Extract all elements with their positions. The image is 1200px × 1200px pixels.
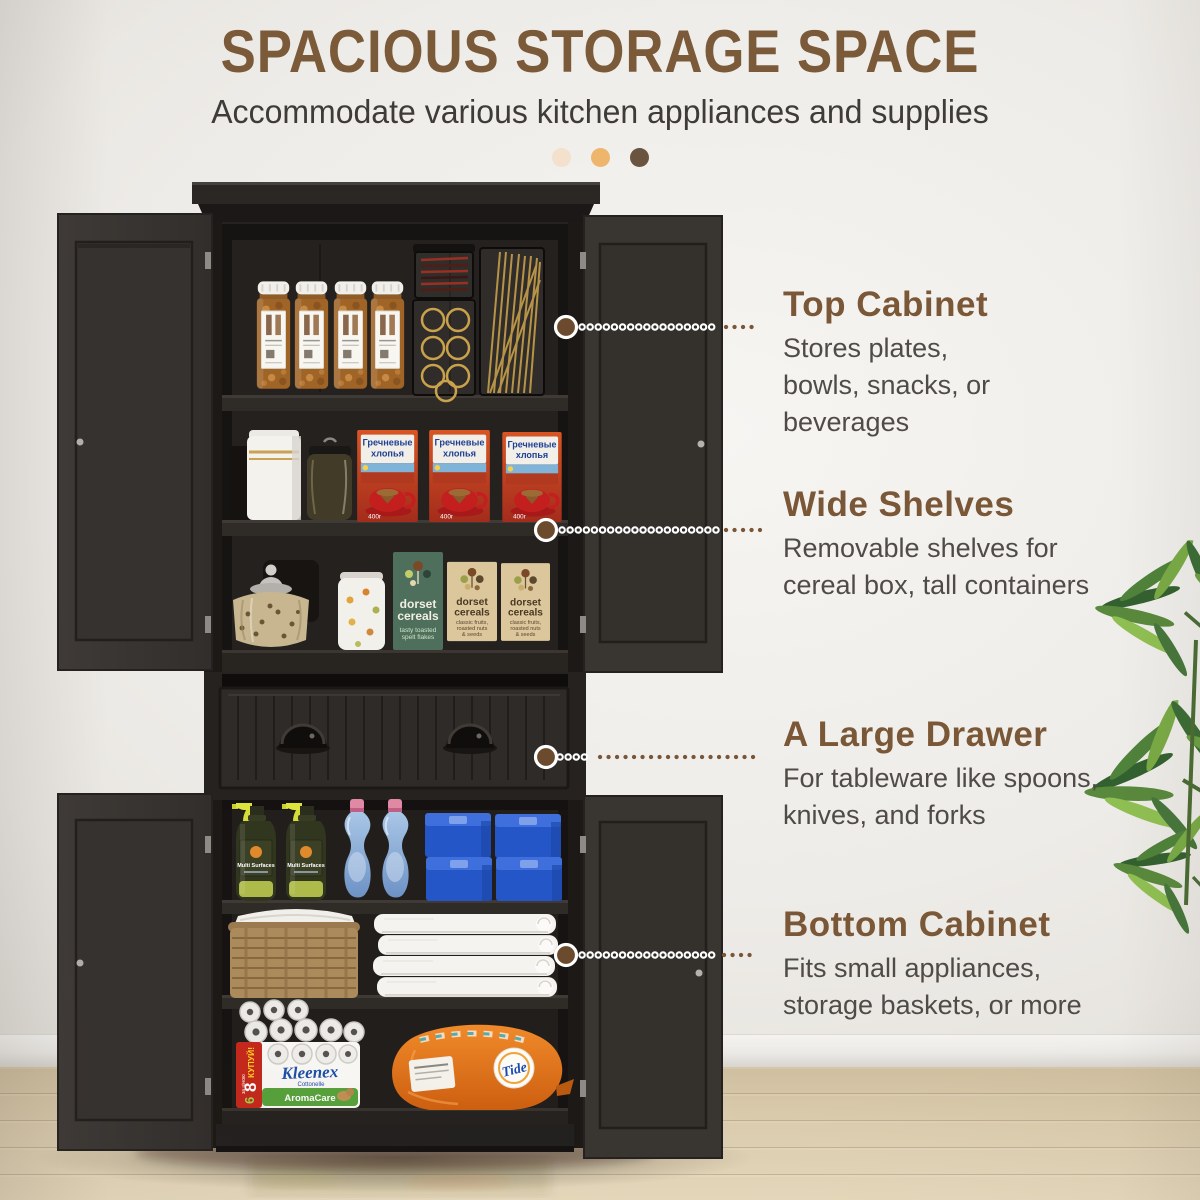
pasta-container-stack xyxy=(413,244,475,401)
door-knob xyxy=(698,441,705,448)
callout-title: Bottom Cabinet xyxy=(783,906,1113,944)
svg-text:tasty toasted: tasty toasted xyxy=(400,627,437,634)
connector-marker xyxy=(536,747,557,768)
dorset-tan-box xyxy=(501,563,550,641)
dorset-green-box: dorset cereals tasty toasted spelt flake… xyxy=(393,552,443,650)
tea-jar xyxy=(307,439,352,520)
door-knob xyxy=(77,439,84,446)
door-knob xyxy=(696,970,703,977)
callout-title: A Large Drawer xyxy=(783,716,1113,754)
cereal-box-ru xyxy=(357,430,418,522)
cereal-box-ru xyxy=(502,432,561,522)
door-hinge xyxy=(205,1078,211,1095)
drawer xyxy=(204,672,586,800)
door-knob xyxy=(77,960,84,967)
shelf-board-3 xyxy=(222,650,568,672)
almond-jar xyxy=(371,281,404,388)
svg-text:spelt flakes: spelt flakes xyxy=(402,634,435,641)
svg-text:cereals: cereals xyxy=(397,609,439,623)
door-hinge xyxy=(580,252,586,269)
cereal-boxes-row xyxy=(357,430,562,522)
callout-title: Top Cabinet xyxy=(783,286,1113,324)
almond-jar xyxy=(295,281,328,388)
kleenex-promo-count: 8 xyxy=(241,1083,260,1092)
top-right-door xyxy=(580,216,722,672)
callout-large-drawer: A Large Drawer For tableware like spoons… xyxy=(783,716,1113,834)
callout-top-cabinet: Top Cabinet Stores plates, bowls, snacks… xyxy=(783,286,1113,441)
callout-desc: Stores plates, bowls, snacks, or beverag… xyxy=(783,330,1113,441)
kleenex-promo-num: 6 xyxy=(242,1097,257,1104)
crown-molding xyxy=(192,182,600,222)
callout-wide-shelves: Wide Shelves Removable shelves for cerea… xyxy=(783,486,1113,604)
white-canister xyxy=(247,430,301,520)
callout-desc: Fits small appliances, storage baskets, … xyxy=(783,950,1113,1024)
dots-canister xyxy=(338,572,385,650)
callout-desc: For tableware like spoons, knives, and f… xyxy=(783,760,1113,834)
kleenex-brand: Kleenex xyxy=(280,1062,339,1083)
spaghetti-container xyxy=(480,248,544,395)
connector-marker xyxy=(556,945,577,966)
kleenex-line: AromaCare xyxy=(284,1093,335,1104)
cabinet-base xyxy=(216,1124,574,1152)
callout-title: Wide Shelves xyxy=(783,486,1113,524)
callout-desc: Removable shelves for cereal box, tall c… xyxy=(783,530,1113,604)
door-hinge xyxy=(205,836,211,853)
almond-jar xyxy=(334,281,367,388)
shelf-board-1 xyxy=(222,395,568,411)
connector-marker xyxy=(536,520,557,541)
door-hinge xyxy=(580,836,586,853)
door-hinge xyxy=(205,252,211,269)
door-hinge xyxy=(580,616,586,633)
door-hinge xyxy=(580,1080,586,1097)
connector-marker xyxy=(556,317,577,338)
top-left-door xyxy=(58,214,212,670)
almond-jar xyxy=(257,281,290,388)
cereal-box-ru xyxy=(429,430,490,522)
kleenex-promo-top: КУПУЙ! xyxy=(245,1047,256,1078)
wicker-basket xyxy=(228,909,360,998)
bottom-left-door xyxy=(58,794,212,1150)
door-hinge xyxy=(205,616,211,633)
callout-bottom-cabinet: Bottom Cabinet Fits small appliances, st… xyxy=(783,906,1113,1024)
bottom-right-door xyxy=(580,796,722,1158)
kleenex-sub: Cottonelle xyxy=(297,1082,325,1088)
dorset-tan-box xyxy=(447,562,497,641)
shelf-board-2 xyxy=(222,520,568,536)
